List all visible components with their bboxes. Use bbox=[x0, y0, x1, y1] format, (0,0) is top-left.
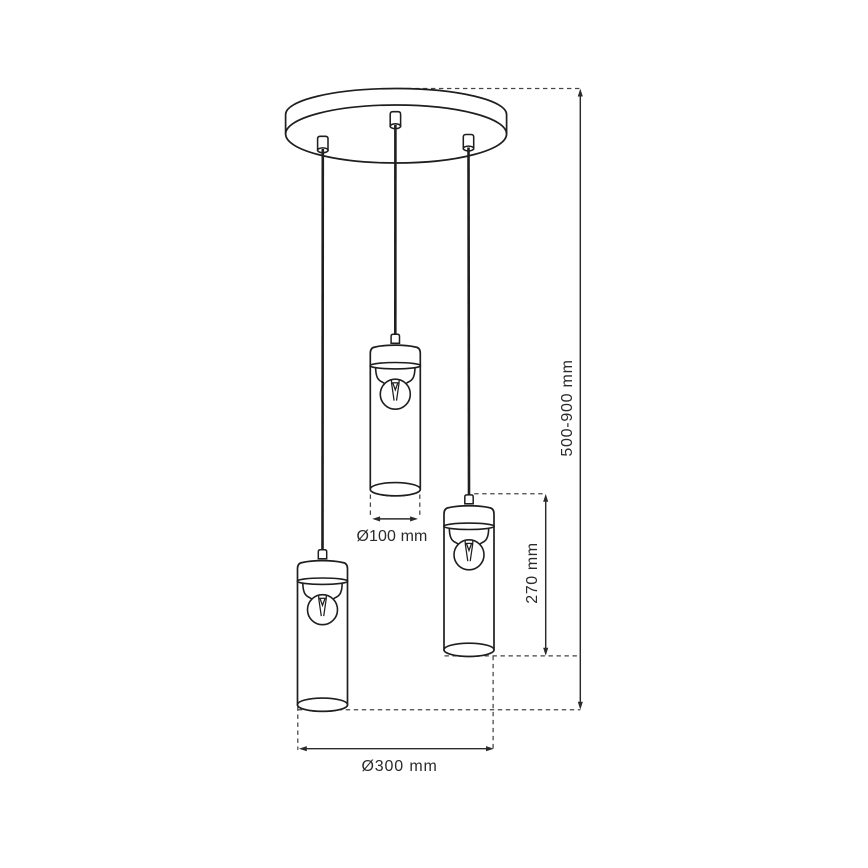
svg-text:270 mm: 270 mm bbox=[524, 542, 541, 603]
svg-text:Ø300 mm: Ø300 mm bbox=[361, 758, 437, 775]
svg-text:500-900 mm: 500-900 mm bbox=[559, 359, 576, 456]
svg-text:Ø100 mm: Ø100 mm bbox=[357, 528, 428, 545]
